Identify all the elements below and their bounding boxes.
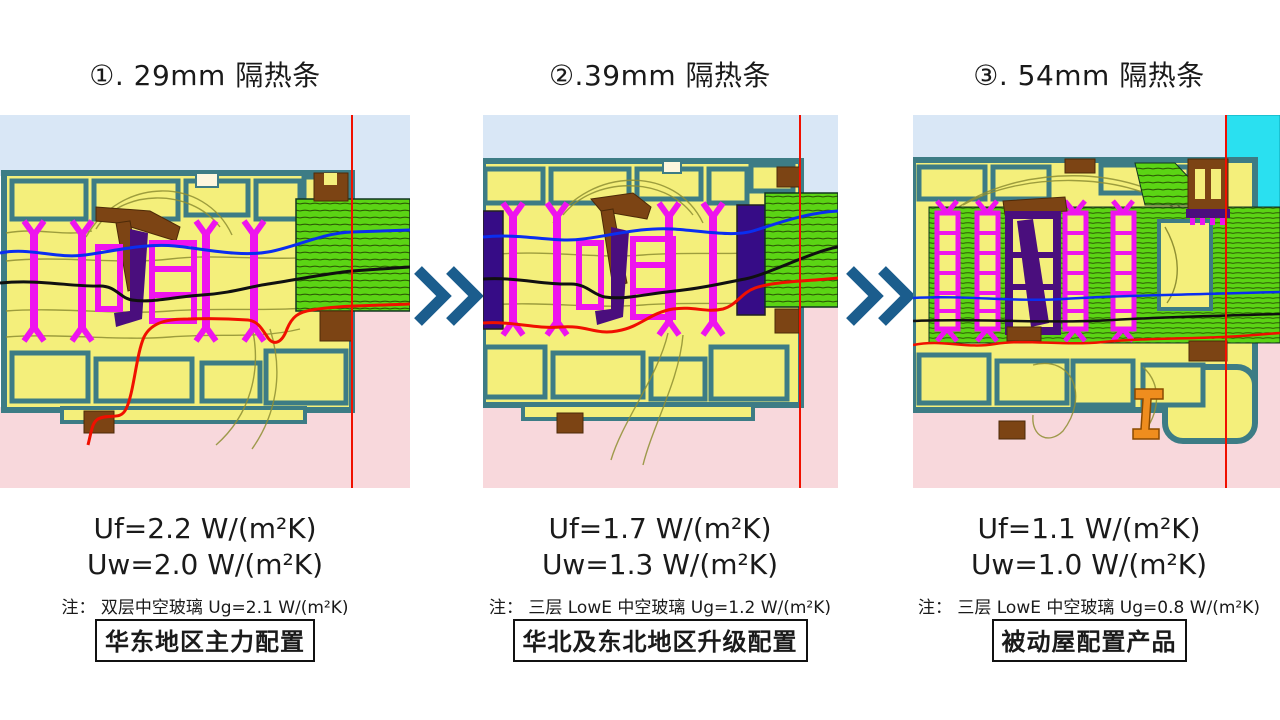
uw-value: Uw=2.0 W/(m²K) <box>0 548 410 581</box>
region-tag: 华北及东北地区升级配置 <box>513 619 808 662</box>
panel-54mm: ③. 54mm 隔热条 <box>898 0 1280 720</box>
region-tag: 被动屋配置产品 <box>992 619 1187 662</box>
uf-value: Uf=1.1 W/(m²K) <box>898 512 1280 545</box>
uw-value: Uw=1.0 W/(m²K) <box>898 548 1280 581</box>
region-tag: 华东地区主力配置 <box>95 619 315 662</box>
uf-value: Uf=2.2 W/(m²K) <box>0 512 410 545</box>
thermal-diagram-54mm <box>913 115 1280 488</box>
glazing-note: 注： 三层 LowE 中空玻璃 Ug=1.2 W/(m²K) <box>465 593 855 618</box>
panel-39mm: ②.39mm 隔热条 <box>465 0 855 720</box>
thermal-diagram-39mm <box>483 115 838 488</box>
uw-value: Uw=1.3 W/(m²K) <box>465 548 855 581</box>
glazing-note: 注： 双层中空玻璃 Ug=2.1 W/(m²K) <box>0 593 410 618</box>
glazing-note: 注： 三层 LowE 中空玻璃 Ug=0.8 W/(m²K) <box>898 593 1280 618</box>
thermal-diagram-29mm <box>0 115 410 488</box>
uf-value: Uf=1.7 W/(m²K) <box>465 512 855 545</box>
panel-title: ①. 29mm 隔热条 <box>0 54 410 94</box>
panel-29mm: ①. 29mm 隔热条 <box>0 0 410 720</box>
panel-title: ②.39mm 隔热条 <box>465 54 855 94</box>
panel-title: ③. 54mm 隔热条 <box>898 54 1280 94</box>
